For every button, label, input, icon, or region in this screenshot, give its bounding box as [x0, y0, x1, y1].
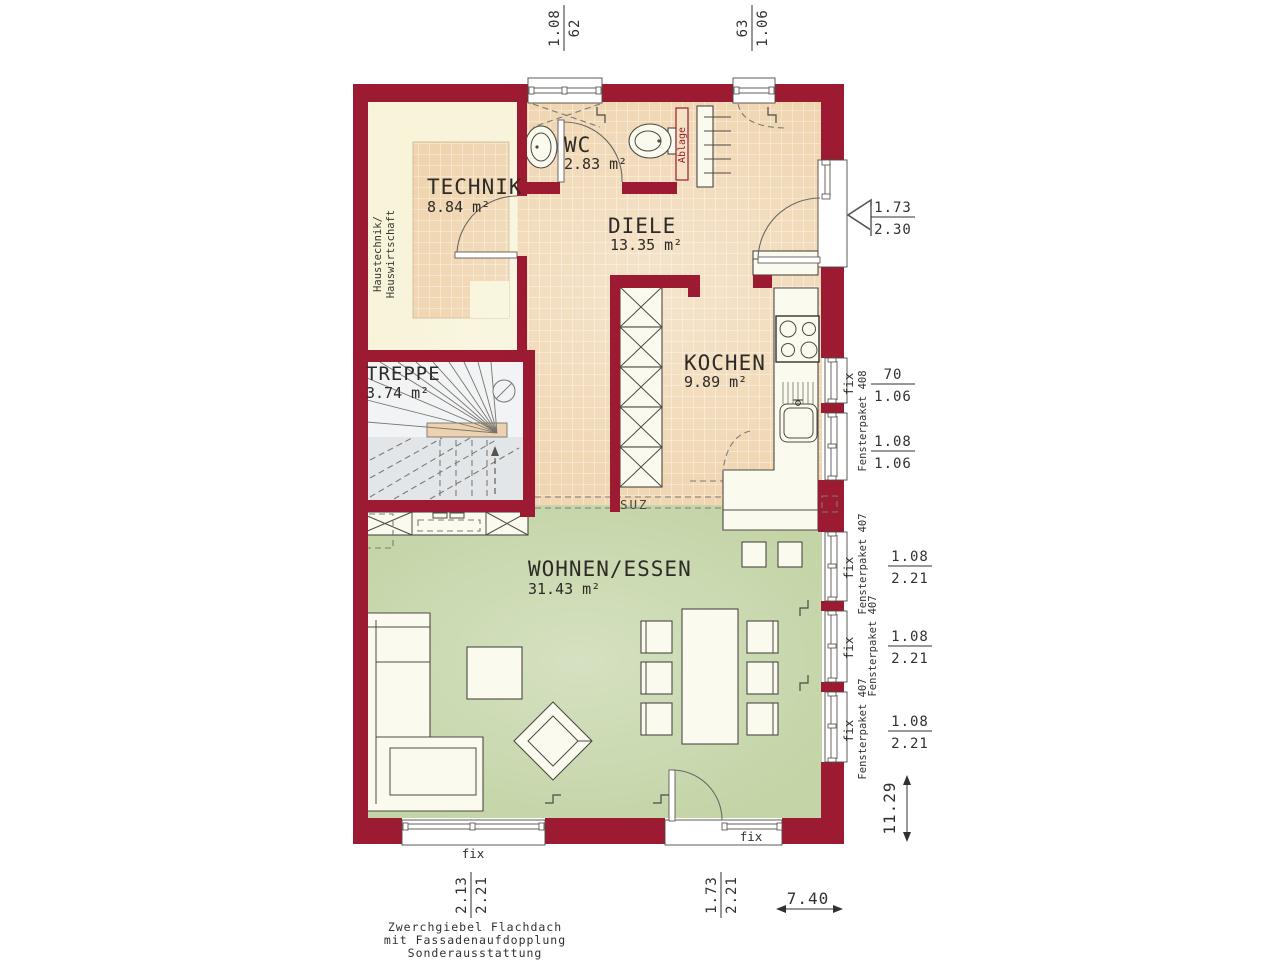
svg-text:70: 70 — [884, 367, 903, 383]
terrace-door-leaf — [669, 770, 675, 821]
room-area-treppe: 3.74 m² — [366, 384, 429, 402]
dim-total-height: 11.29 — [880, 775, 911, 842]
dim-kitchen-win2: 1.08 1.06 — [871, 434, 915, 472]
side-table — [467, 647, 522, 699]
svg-text:2.21: 2.21 — [891, 736, 929, 752]
footer-line-3: Sonderausstattung — [408, 946, 543, 960]
kitchen-tall-cabinet — [620, 287, 662, 487]
svg-text:1.08: 1.08 — [891, 549, 929, 565]
svg-text:1.06: 1.06 — [874, 456, 912, 472]
fix-label: fix — [740, 829, 763, 844]
svg-text:1.73: 1.73 — [704, 876, 720, 914]
footer-line-2: mit Fassadenaufdopplung — [384, 933, 566, 947]
sink — [525, 126, 557, 168]
svg-text:1.08: 1.08 — [891, 629, 929, 645]
room-label-treppe: TREPPE — [366, 363, 441, 385]
svg-text:2.21: 2.21 — [724, 876, 740, 914]
room-area-diele: 13.35 m² — [610, 236, 682, 254]
floor-plan-drawing: TECHNIK 8.84 m² WC 2.83 m² DIELE 13.35 m… — [0, 0, 1280, 960]
svg-text:1.08: 1.08 — [891, 714, 929, 730]
room-area-technik: 8.84 m² — [427, 198, 490, 216]
svg-text:1.08: 1.08 — [547, 9, 563, 47]
svg-text:7.40: 7.40 — [787, 889, 830, 908]
haustechnik-label-2: Hauswirtschaft — [385, 210, 397, 299]
suz-label: SUZ — [620, 497, 649, 512]
svg-text:2.21: 2.21 — [891, 651, 929, 667]
svg-text:1.08: 1.08 — [874, 434, 912, 450]
room-area-kochen: 9.89 m² — [684, 373, 747, 391]
dim-living-win3: 1.08 2.21 — [888, 714, 932, 752]
footer-note: Zwerchgiebel Flachdach mit Fassadenaufdo… — [384, 920, 566, 960]
bar-stool — [778, 542, 802, 567]
svg-text:2.13: 2.13 — [454, 876, 470, 914]
dim-living-win1: 1.08 2.21 — [888, 549, 932, 587]
ablage-label: Ablage — [677, 127, 688, 163]
svg-text:1.06: 1.06 — [874, 389, 912, 405]
dim-bottom-right: 1.73 2.21 — [704, 872, 740, 918]
floor-plan-page: TECHNIK 8.84 m² WC 2.83 m² DIELE 13.35 m… — [0, 0, 1280, 960]
fensterpaket-407-label: Fensterpaket 407 — [857, 678, 869, 779]
svg-text:2.21: 2.21 — [474, 876, 490, 914]
svg-text:2.21: 2.21 — [891, 571, 929, 587]
window-kitchen-2 — [825, 413, 847, 480]
fix-label: fix — [841, 636, 856, 659]
svg-text:1.06: 1.06 — [755, 9, 771, 47]
room-label-technik: TECHNIK — [427, 175, 523, 199]
dining-set — [641, 609, 778, 744]
fensterpaket-408-label: Fensterpaket 408 — [857, 370, 869, 471]
dining-table — [682, 609, 738, 744]
fix-label: fix — [841, 556, 856, 579]
dim-bottom-left: 2.13 2.21 — [454, 872, 490, 918]
bar-stool — [742, 542, 766, 567]
svg-text:1.73: 1.73 — [874, 200, 912, 216]
room-label-kochen: KOCHEN — [684, 351, 766, 375]
room-label-wohnen: WOHNEN/ESSEN — [528, 557, 692, 581]
fix-label: fix — [841, 719, 856, 742]
fix-label: fix — [841, 372, 856, 395]
window-bottom-left — [402, 820, 545, 845]
wardrobe — [697, 106, 713, 187]
room-label-wc: WC — [564, 133, 591, 157]
footer-line-1: Zwerchgiebel Flachdach — [388, 920, 562, 934]
room-label-diele: DIELE — [608, 214, 676, 238]
fix-label: fix — [462, 846, 485, 861]
dim-top-right: 63 1.06 — [735, 5, 771, 51]
svg-text:63: 63 — [735, 19, 751, 38]
entrance-door-leaf — [758, 257, 820, 263]
room-area-wc: 2.83 m² — [564, 155, 627, 173]
haustechnik-label-1: Haustechnik/ — [372, 216, 384, 292]
room-area-wohnen: 31.43 m² — [528, 580, 600, 598]
stove — [776, 316, 819, 362]
svg-text:62: 62 — [567, 19, 583, 38]
svg-text:11.29: 11.29 — [880, 781, 899, 834]
dim-living-win2: 1.08 2.21 — [888, 629, 932, 667]
dim-total-width: 7.40 — [776, 889, 843, 913]
dim-top-left: 1.08 62 — [547, 5, 583, 51]
svg-text:2.30: 2.30 — [874, 222, 912, 238]
